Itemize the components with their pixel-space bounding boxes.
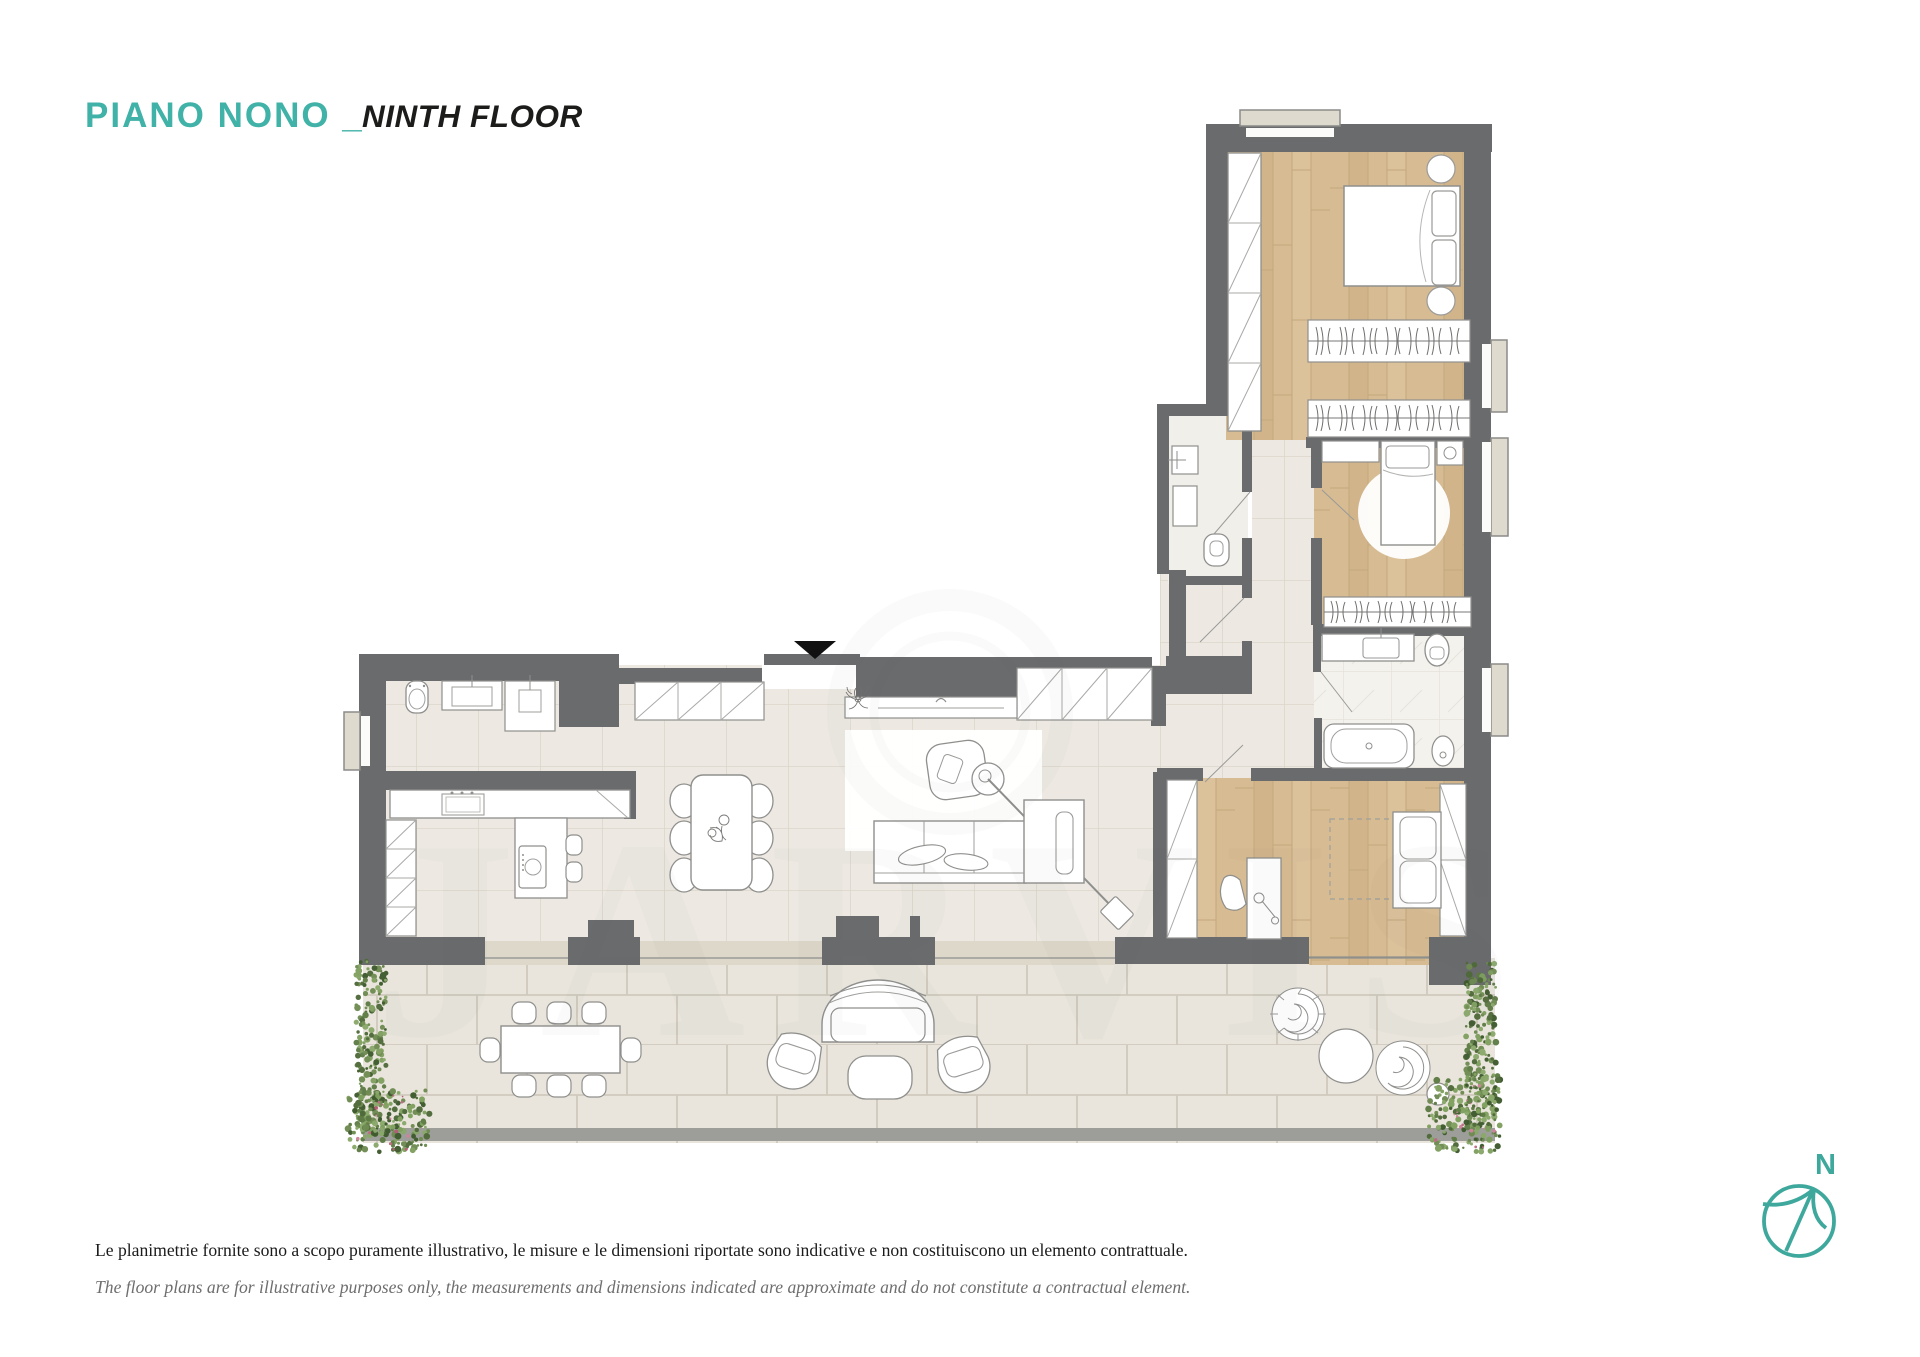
svg-text:PIANO NONO _: PIANO NONO _: [85, 96, 364, 135]
svg-text:The floor plans are for illust: The floor plans are for illustrative pur…: [95, 1277, 1190, 1297]
svg-text:JARVIS: JARVIS: [373, 781, 1536, 1097]
svg-text:Le planimetrie fornite sono a: Le planimetrie fornite sono a scopo pura…: [95, 1240, 1188, 1260]
svg-text:N: N: [1815, 1149, 1836, 1181]
svg-text:NINTH FLOOR: NINTH FLOOR: [362, 98, 583, 134]
